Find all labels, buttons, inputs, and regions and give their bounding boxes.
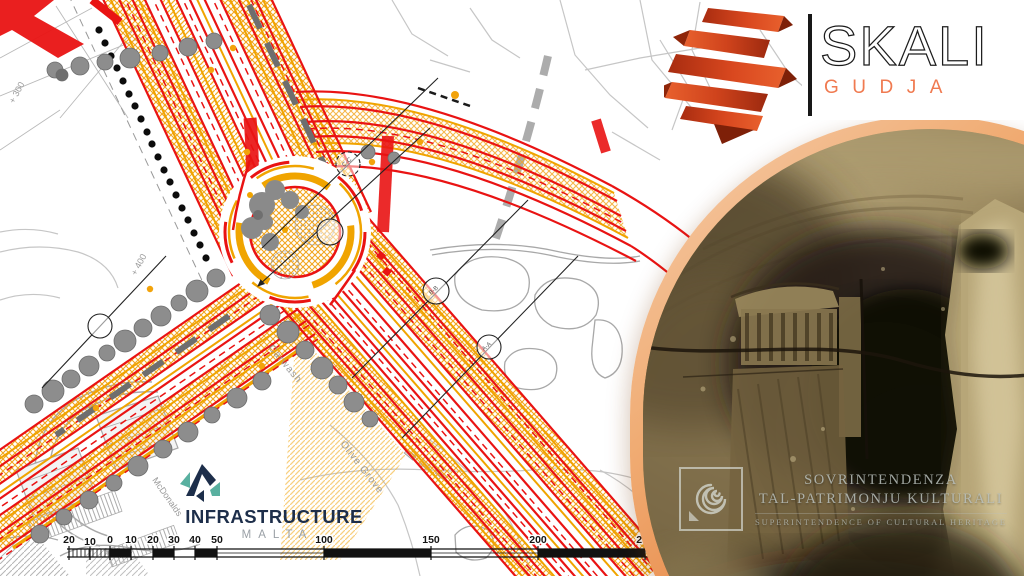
scale-label: 10 bbox=[125, 534, 137, 546]
roundabout bbox=[219, 156, 371, 308]
skali-divider-bar bbox=[808, 14, 812, 116]
heritage-wordmark: SOVRINTENDENZA TAL-PATRIMONJU KULTURALI … bbox=[755, 471, 1007, 526]
scale-label: 20 bbox=[147, 534, 159, 546]
scale-label: 10 bbox=[84, 536, 96, 548]
skali-title-text: SKALI bbox=[820, 14, 989, 77]
skali-gudja-logo: SKALI GUDJA bbox=[802, 0, 1024, 120]
skali-subtitle: GUDJA bbox=[820, 77, 1020, 99]
im-name: INFRASTRUCTURE bbox=[176, 506, 372, 528]
survey-tick-row bbox=[418, 88, 470, 106]
heritage-line3: SUPERINTENDENCE OF CULTURAL HERITAGE bbox=[755, 513, 1007, 527]
skali-gudja-poster: C-C B-B A-A Carwash Olive Grove McDonald… bbox=[0, 0, 1024, 576]
skali-wordmark: SKALI GUDJA bbox=[820, 14, 1020, 99]
heritage-spiral-logo-icon bbox=[679, 467, 743, 531]
scale-label: 200 bbox=[529, 534, 547, 546]
heritage-line2: TAL-PATRIMONJU KULTURALI bbox=[755, 490, 1007, 509]
skali-title: SKALI bbox=[820, 14, 1020, 78]
label-chainage-300: + 300 bbox=[7, 80, 27, 105]
heritage-line1: SOVRINTENDENZA bbox=[755, 471, 1007, 490]
label-chainage-400: + 400 bbox=[129, 252, 149, 277]
catacomb-photo: SOVRINTENDENZA TAL-PATRIMONJU KULTURALI … bbox=[643, 129, 1024, 576]
scale-label: 0 bbox=[107, 534, 113, 546]
scale-label: 150 bbox=[422, 534, 440, 546]
im-country: MALTA bbox=[176, 529, 372, 541]
scale-label: 20 bbox=[63, 534, 75, 546]
infrastructure-malta-logo: INFRASTRUCTURE MALTA bbox=[176, 456, 372, 541]
im-monogram-icon bbox=[176, 456, 224, 504]
photo-frame: SOVRINTENDENZA TAL-PATRIMONJU KULTURALI … bbox=[630, 116, 1024, 576]
skali-ribbon-logo-icon bbox=[664, 2, 800, 146]
heritage-watermark: SOVRINTENDENZA TAL-PATRIMONJU KULTURALI … bbox=[679, 467, 1007, 531]
